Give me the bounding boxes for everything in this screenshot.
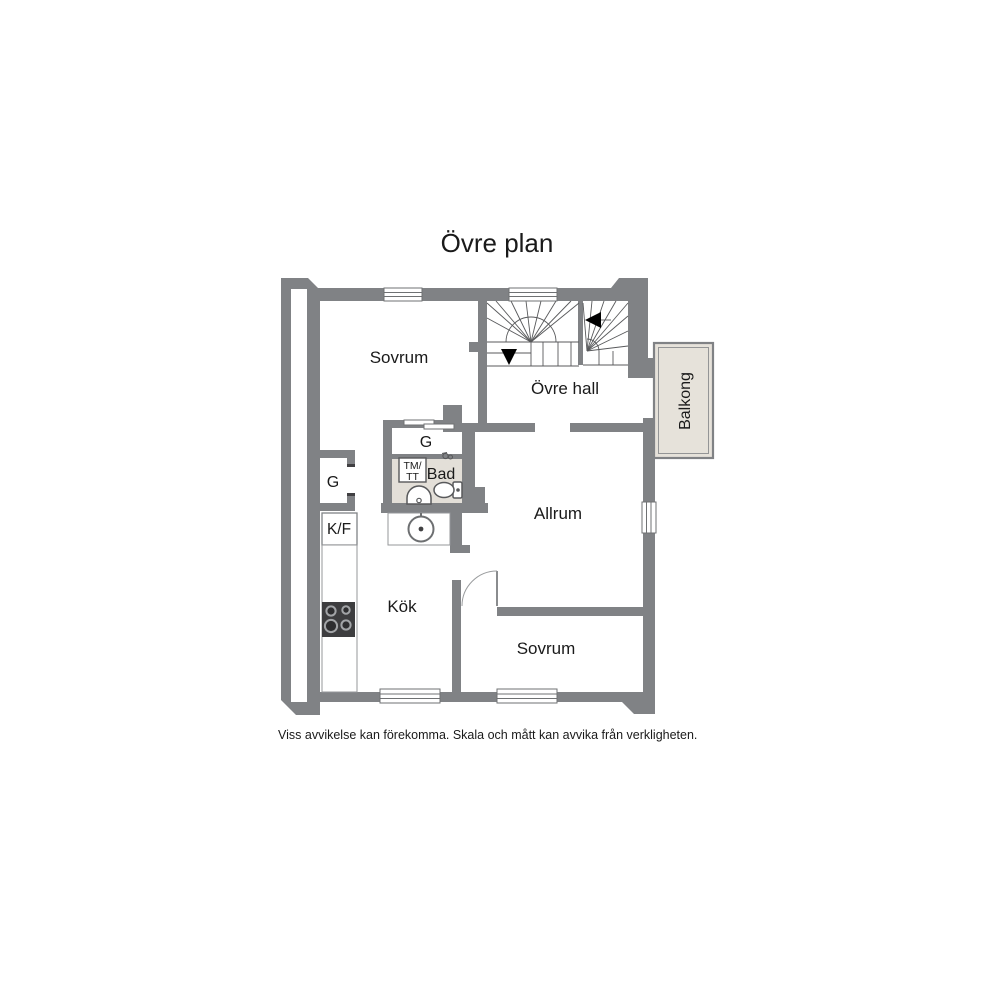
wall-bedroom-bottom-left — [452, 580, 461, 692]
window-living-room — [642, 502, 656, 533]
wall-bottom-right-corner — [622, 702, 655, 714]
window-kitchen — [380, 689, 440, 703]
label-wardrobe-center: G — [420, 434, 432, 451]
room-label-upper-hall: Övre hall — [531, 379, 599, 398]
room-label-bedroom-top: Sovrum — [370, 348, 429, 367]
wall-bedroom-stairs-bump — [469, 342, 478, 352]
window-stairs — [509, 288, 557, 301]
wall-bath-bottom — [381, 503, 488, 513]
label-fridge-freezer: K/F — [327, 521, 351, 538]
wall-right-upper — [628, 288, 648, 362]
window-bedroom-top — [384, 288, 422, 301]
staircase — [487, 301, 628, 366]
floor-plan-page: Övre plan Sovrum Övre hall Allrum Kök So… — [0, 0, 992, 992]
left-wall-channel — [291, 289, 307, 702]
wall-balcony-jamb — [628, 358, 655, 378]
wall-right-lower — [643, 418, 655, 714]
kitchen-fittings — [322, 513, 450, 692]
window-bedroom-bottom — [497, 689, 557, 703]
sink-icon — [407, 486, 431, 504]
wall-bath-block-left — [383, 420, 392, 513]
wardrobe-left-door-tick-top — [347, 464, 355, 467]
page-title: Övre plan — [441, 228, 554, 258]
wall-bedroom-stairs — [478, 301, 487, 425]
wall-bottom — [318, 692, 643, 702]
stairs-direction-arrow-icon — [585, 312, 601, 328]
stairs-right-treads — [583, 301, 628, 365]
floor-plan-svg: Övre plan Sovrum Övre hall Allrum Kök So… — [0, 0, 992, 992]
room-label-balcony: Balkong — [677, 372, 694, 430]
label-bathroom: Bad — [427, 466, 455, 483]
wall-bedroom-bottom-top — [497, 607, 643, 616]
wall-top-right-raised — [611, 278, 648, 288]
toilet-icon — [434, 482, 462, 498]
wall-bath-right — [462, 432, 475, 513]
room-label-living-room: Allrum — [534, 504, 582, 523]
label-washer-line2: TT — [406, 471, 419, 483]
room-label-kitchen: Kök — [387, 597, 417, 616]
wardrobe-left-door-tick-bottom — [347, 493, 355, 496]
wall-nook-right — [450, 513, 462, 545]
disclaimer: Viss avvikelse kan förekomma. Skala och … — [278, 728, 697, 742]
sliding-door-leaf-2 — [424, 424, 454, 429]
stairs-left-treads — [487, 301, 579, 366]
room-label-bedroom-bottom: Sovrum — [517, 639, 576, 658]
door-swing-arc — [462, 571, 497, 606]
wall-hall-divider-right — [570, 423, 643, 432]
wall-nook-bottom — [450, 545, 470, 553]
wall-top — [318, 288, 648, 301]
wall-bath-right-foot — [475, 487, 485, 503]
wall-stairs-divider — [578, 301, 583, 365]
wall-wardrobe-left-bottom — [320, 503, 355, 511]
label-wardrobe-left: G — [327, 474, 339, 491]
stairs-down-arrow-icon — [501, 349, 517, 365]
